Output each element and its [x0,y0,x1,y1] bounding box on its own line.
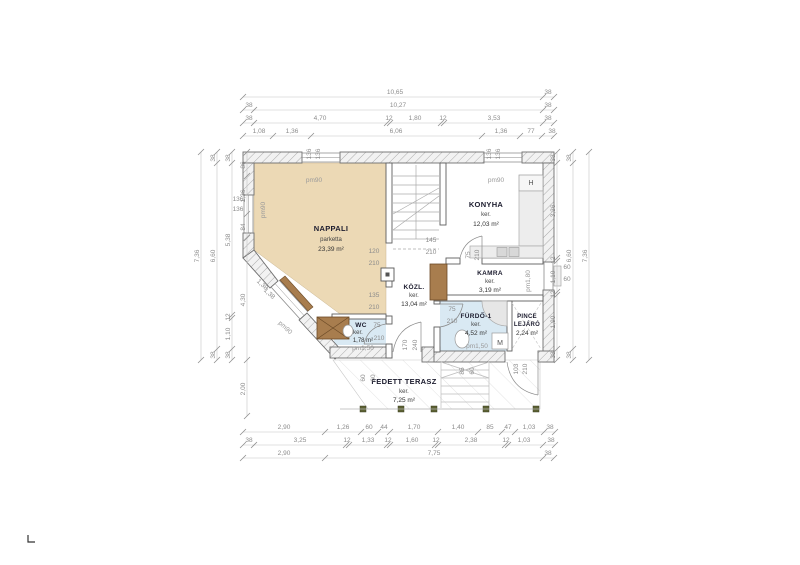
dim-label: 60 [563,276,571,283]
dim-label: 47 [504,424,512,431]
dim-label: 120 [369,248,380,255]
dim-label: 4,70 [314,115,327,122]
dim-label: 10,65 [387,89,404,96]
dim-label: 210 [369,260,380,267]
washer-label: M [497,340,503,347]
dim-label: 136 [306,148,313,159]
room-label-pince2: LEJÁRÓ [514,320,540,328]
dim-label: 38 [544,102,552,109]
dim-label: 12 [550,256,557,264]
dim-label: 1,40 [452,424,465,431]
dim-label: 240 [412,339,419,350]
fridge-label: H [528,180,533,187]
dim-label: 2,00 [240,382,247,395]
dim-label: 10,27 [390,102,407,109]
dim-label: 1,10 [225,327,232,340]
room-area-pince: 2,24 m² [516,330,539,337]
dim-label: 136 [233,196,244,203]
dim-label: 136 [486,148,493,159]
dim-label: pm90 [488,177,505,184]
dim-label: pm90 [260,201,267,218]
dim-label: 1,08 [253,128,266,135]
dim-label: 1,03 [523,424,536,431]
dim-label: 2,90 [278,424,291,431]
floor-plan: NAPPALI parketta 23,39 m² KONYHA ker. 12… [0,0,800,565]
dim-label: 44 [380,424,388,431]
dim-label: 38 [550,154,557,162]
chimney-block [430,264,447,300]
sink [509,248,519,257]
dim-label: 2,90 [278,450,291,457]
dim-label: 75 [465,251,472,259]
dim-label: 3,36 [550,204,557,217]
room-area-konyha: 12,03 m² [473,221,499,228]
dim-label: 210 [522,363,529,374]
dim-label: 210 [474,249,481,260]
room-label-kamra: KAMRA [477,270,503,277]
dim-label: 38 [548,128,556,135]
room-label-nappali: NAPPALI [314,224,348,233]
dim-label: 38 [245,102,253,109]
room-label-pince: PINCE [517,314,537,320]
dim-label: 38 [550,351,557,359]
room-finish-konyha: ker. [481,212,491,218]
dim-label: 170 [402,339,409,350]
dim-label: 60 [469,367,476,375]
dim-label: 4,30 [240,293,247,306]
dim-label: 38 [546,424,554,431]
dim-label: 60 [360,374,367,382]
dim-label: 136 [315,148,322,159]
sink [497,248,507,257]
dim-label: 1,03 [518,437,531,444]
dim-label: 85 [459,367,466,375]
dim-label: 210 [426,249,437,256]
dim-label: 12 [384,437,392,444]
room-area-furdo: 4,52 m² [465,330,488,337]
dim-label: 3,25 [294,437,307,444]
room-area-wc: 1,78 m² [353,338,373,344]
dim-label: 12 [385,115,393,122]
dim-label: 7,36 [582,249,589,262]
dim-label: 1,10 [550,270,557,283]
dim-label: 60 [370,374,377,382]
dim-label: 1,60 [406,437,419,444]
room-finish-terasz: ker. [399,389,409,395]
room-area-kozl: 13,04 m² [401,301,427,308]
dim-label: 75 [373,322,381,329]
dim-label: 7,75 [428,450,441,457]
dim-label: 3,53 [488,115,501,122]
dim-label: 12 [550,290,557,298]
dim-label: 7,36 [194,249,201,262]
dim-label: 135 [369,292,380,299]
wc-toilet [343,325,353,337]
dim-label: 210 [369,304,380,311]
dim-label: 1,33 [362,437,375,444]
dim-label: 145 [426,237,437,244]
room-area-nappali: 23,39 m² [318,246,344,253]
dim-label: 210 [447,318,458,325]
page-background [0,0,800,565]
dim-label: 12 [225,313,232,321]
dim-label: 38 [544,115,552,122]
dim-label: 86 [240,161,247,169]
dim-label: 38 [225,351,232,359]
room-label-konyha: KONYHA [469,200,504,209]
dim-label: 75 [448,306,456,313]
room-finish-kamra: ker. [485,279,495,285]
dim-label: 38 [566,154,573,162]
dim-label: 1,80 [409,115,422,122]
room-label-terasz: FEDETT TERASZ [371,377,436,386]
room-finish-nappali: parketta [320,237,342,243]
room-finish-kozl: ker. [409,293,419,299]
dim-label: 12 [439,115,447,122]
room-label-furdo: FÜRDŐ-1 [461,311,492,320]
room-label-wc: WC [355,322,366,329]
dim-label: 6,06 [390,128,403,135]
dim-label: 12 [502,437,510,444]
room-finish-wc: ker. [353,330,363,336]
dim-label: 38 [544,450,552,457]
column-symbol [381,268,394,281]
dim-label: 84 [240,223,247,231]
dim-label: pm90 [306,177,323,184]
room-label-kozl: KÖZL. [404,282,425,291]
dim-label: 1,90 [550,315,557,328]
dim-label: 38 [566,351,573,359]
dim-label: 85 [486,424,494,431]
dim-label: 38 [245,437,253,444]
dim-label: 6,60 [210,249,217,262]
dim-label: 77 [527,128,535,135]
dim-label: 38 [225,154,232,162]
dim-label: 38 [245,115,253,122]
dim-label: 103 [513,363,520,374]
dim-label: 38 [544,89,552,96]
dim-label: 38 [210,154,217,162]
dim-label: pm1,50 [352,345,374,352]
dim-label: 210 [374,335,385,342]
dim-label: 60 [563,264,571,271]
dim-label: 60 [365,424,373,431]
dim-label: 12 [432,437,440,444]
room-area-kamra: 3,19 m² [479,287,502,294]
dim-label: 12 [343,437,351,444]
dim-label: pm1,50 [466,343,488,350]
dim-label: 1,36 [286,128,299,135]
dim-label: 6,60 [566,249,573,262]
dim-label: 2,38 [465,437,478,444]
dim-label: 1,26 [337,424,350,431]
room-area-terasz: 7,25 m² [393,397,416,404]
room-finish-furdo: ker. [471,322,481,328]
dim-label: 38 [210,351,217,359]
dim-label: 1,70 [408,424,421,431]
dim-label: 136 [495,148,502,159]
dim-label: 5,38 [225,233,232,246]
dim-label: pm1,80 [525,270,532,292]
dim-label: 1,36 [495,128,508,135]
dim-label: 136 [233,206,244,213]
dim-label: 38 [547,437,555,444]
